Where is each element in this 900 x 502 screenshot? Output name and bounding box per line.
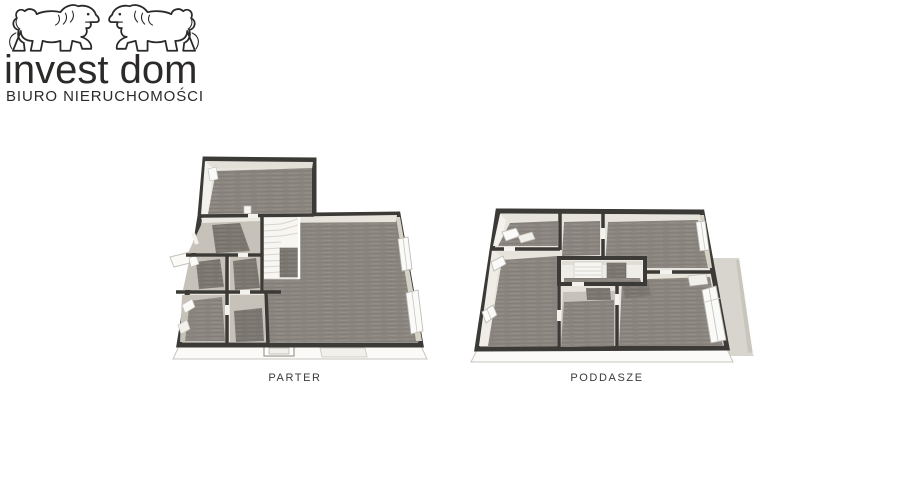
- lion-left: [10, 5, 99, 51]
- carpet: [208, 168, 312, 214]
- lion-right: [109, 5, 198, 51]
- wall-face: [500, 214, 558, 220]
- carpet: [562, 221, 600, 256]
- carpet-strip: [564, 278, 641, 282]
- rug: [234, 308, 264, 342]
- poddasze-top-left-room: [493, 214, 558, 246]
- poddasze-floorplan: [460, 192, 760, 372]
- poddasze-bottom-left-room: [479, 250, 558, 346]
- window-frame: [208, 167, 218, 181]
- rug: [586, 288, 611, 300]
- door-leaf: [244, 206, 251, 214]
- poddasze-bottom-middle-room: [560, 286, 615, 347]
- parter-floorplan: [160, 145, 460, 370]
- logo-title: invest dom: [4, 50, 264, 90]
- poddasze-label: PODDASZE: [487, 372, 727, 384]
- rug: [196, 259, 224, 289]
- parter-small-room-1: [183, 255, 226, 290]
- wall-face: [562, 214, 601, 219]
- parter-bottom-left-room: [178, 295, 225, 342]
- company-logo: invest dom BIURO NIERUCHOMOŚCI: [0, 0, 240, 115]
- parter-label: PARTER: [175, 372, 415, 384]
- rug: [233, 258, 260, 290]
- entry-step-inner: [269, 348, 289, 354]
- wardrobe: [688, 274, 708, 286]
- wall-face: [605, 214, 700, 221]
- facade-window: [320, 348, 367, 357]
- parter-small-room-2: [230, 257, 260, 290]
- parter-front-facade: [173, 346, 427, 359]
- carpet: [561, 300, 614, 347]
- parter-staircase: [262, 217, 299, 279]
- stair-landing: [280, 248, 299, 277]
- wall-face: [205, 161, 313, 169]
- logo-subtitle: BIURO NIERUCHOMOŚCI: [6, 89, 266, 104]
- poddasze-stair-room: [559, 258, 645, 284]
- parter-bottom-middle-room: [230, 295, 266, 342]
